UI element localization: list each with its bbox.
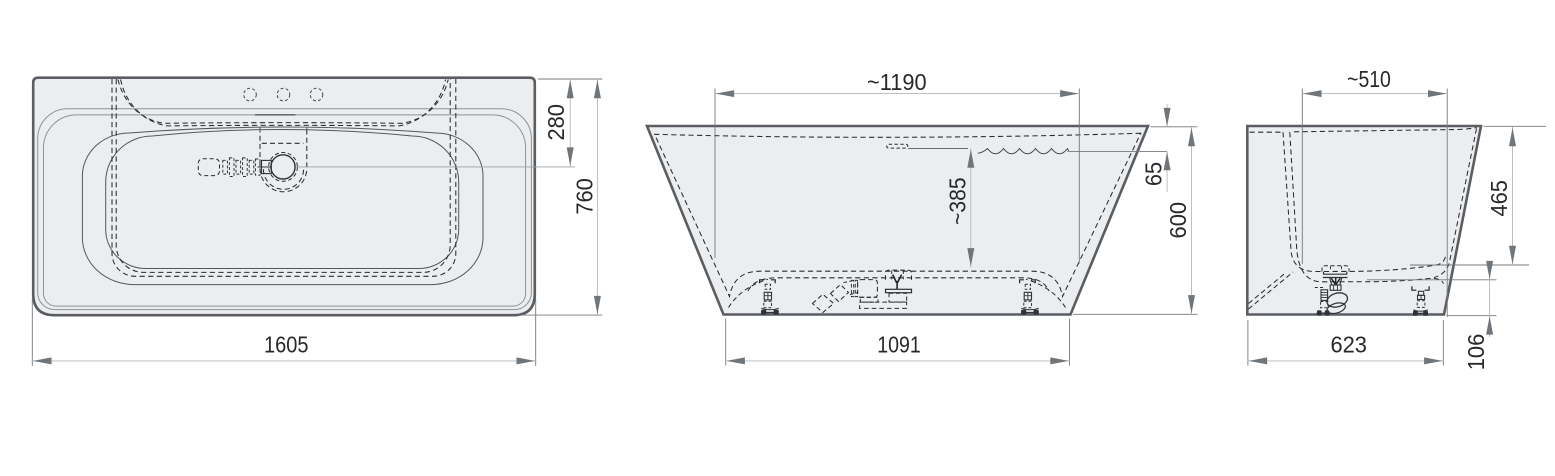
svg-text:106: 106: [1463, 334, 1489, 371]
svg-text:1091: 1091: [877, 331, 921, 357]
svg-text:465: 465: [1486, 180, 1512, 217]
svg-text:760: 760: [571, 178, 597, 215]
svg-text:623: 623: [1330, 332, 1367, 358]
svg-text:65: 65: [1141, 162, 1167, 186]
svg-text:1605: 1605: [264, 332, 309, 358]
svg-text:~1190: ~1190: [867, 69, 927, 95]
svg-text:~385: ~385: [944, 177, 970, 225]
svg-text:600: 600: [1165, 202, 1191, 239]
svg-text:~510: ~510: [1347, 66, 1391, 92]
svg-text:280: 280: [543, 104, 569, 141]
